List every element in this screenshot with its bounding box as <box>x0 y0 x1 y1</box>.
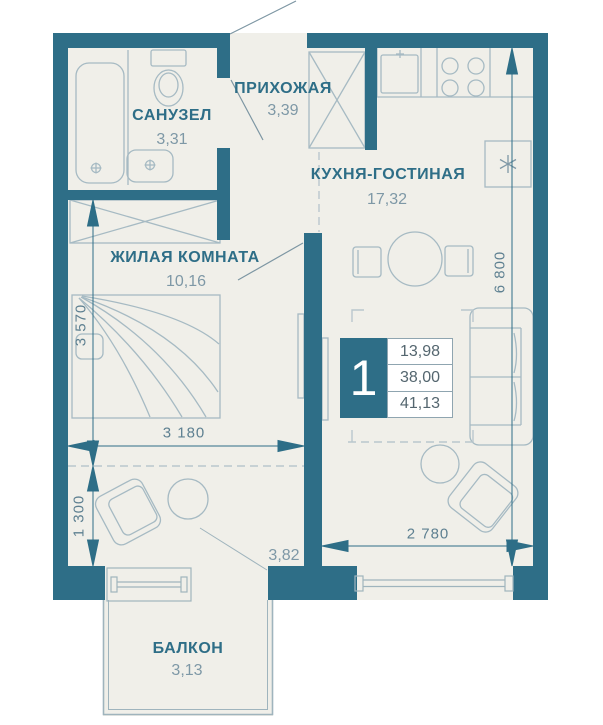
room-area-hallway: 3,39 <box>267 102 298 120</box>
apartment-floorplan: САНУЗЕЛ 3,31 ПРИХОЖАЯ 3,39 КУХНЯ-ГОСТИНА… <box>0 0 603 725</box>
room-area-bathroom: 3,31 <box>156 131 187 149</box>
dimension-niche-height: 1 300 <box>71 495 88 538</box>
entrance-door-swing <box>230 1 296 34</box>
dimension-living-width: 3 180 <box>163 425 206 442</box>
unit-areas-table: 13,98 38,00 41,13 <box>387 338 453 418</box>
floorplan-drawing <box>0 0 603 725</box>
tv-kitchen <box>322 338 328 420</box>
unit-living-area: 13,98 <box>388 339 452 365</box>
dimension-total-height: 6 800 <box>492 251 509 294</box>
room-area-balcony: 3,13 <box>171 662 202 680</box>
unit-info-card: 1 13,98 38,00 41,13 <box>340 338 453 418</box>
room-area-niche: 3,82 <box>268 547 299 565</box>
room-label-balcony: БАЛКОН <box>153 640 224 658</box>
dimension-living-height: 3 570 <box>73 304 90 347</box>
room-label-bathroom: САНУЗЕЛ <box>132 107 212 125</box>
room-label-hallway: ПРИХОЖАЯ <box>234 80 332 98</box>
balcony-window <box>107 568 191 601</box>
dimension-kitchen-width: 2 780 <box>407 526 450 543</box>
room-area-kitchen-living: 17,32 <box>367 191 407 209</box>
room-label-kitchen-living: КУХНЯ-ГОСТИНАЯ <box>311 166 466 184</box>
unit-number: 1 <box>340 338 387 418</box>
tv-living <box>298 314 304 398</box>
room-label-living-room: ЖИЛАЯ КОМНАТА <box>110 249 259 267</box>
room-area-living-room: 10,16 <box>166 273 206 291</box>
unit-total-area: 41,13 <box>388 392 452 417</box>
unit-floor-area: 38,00 <box>388 365 452 391</box>
